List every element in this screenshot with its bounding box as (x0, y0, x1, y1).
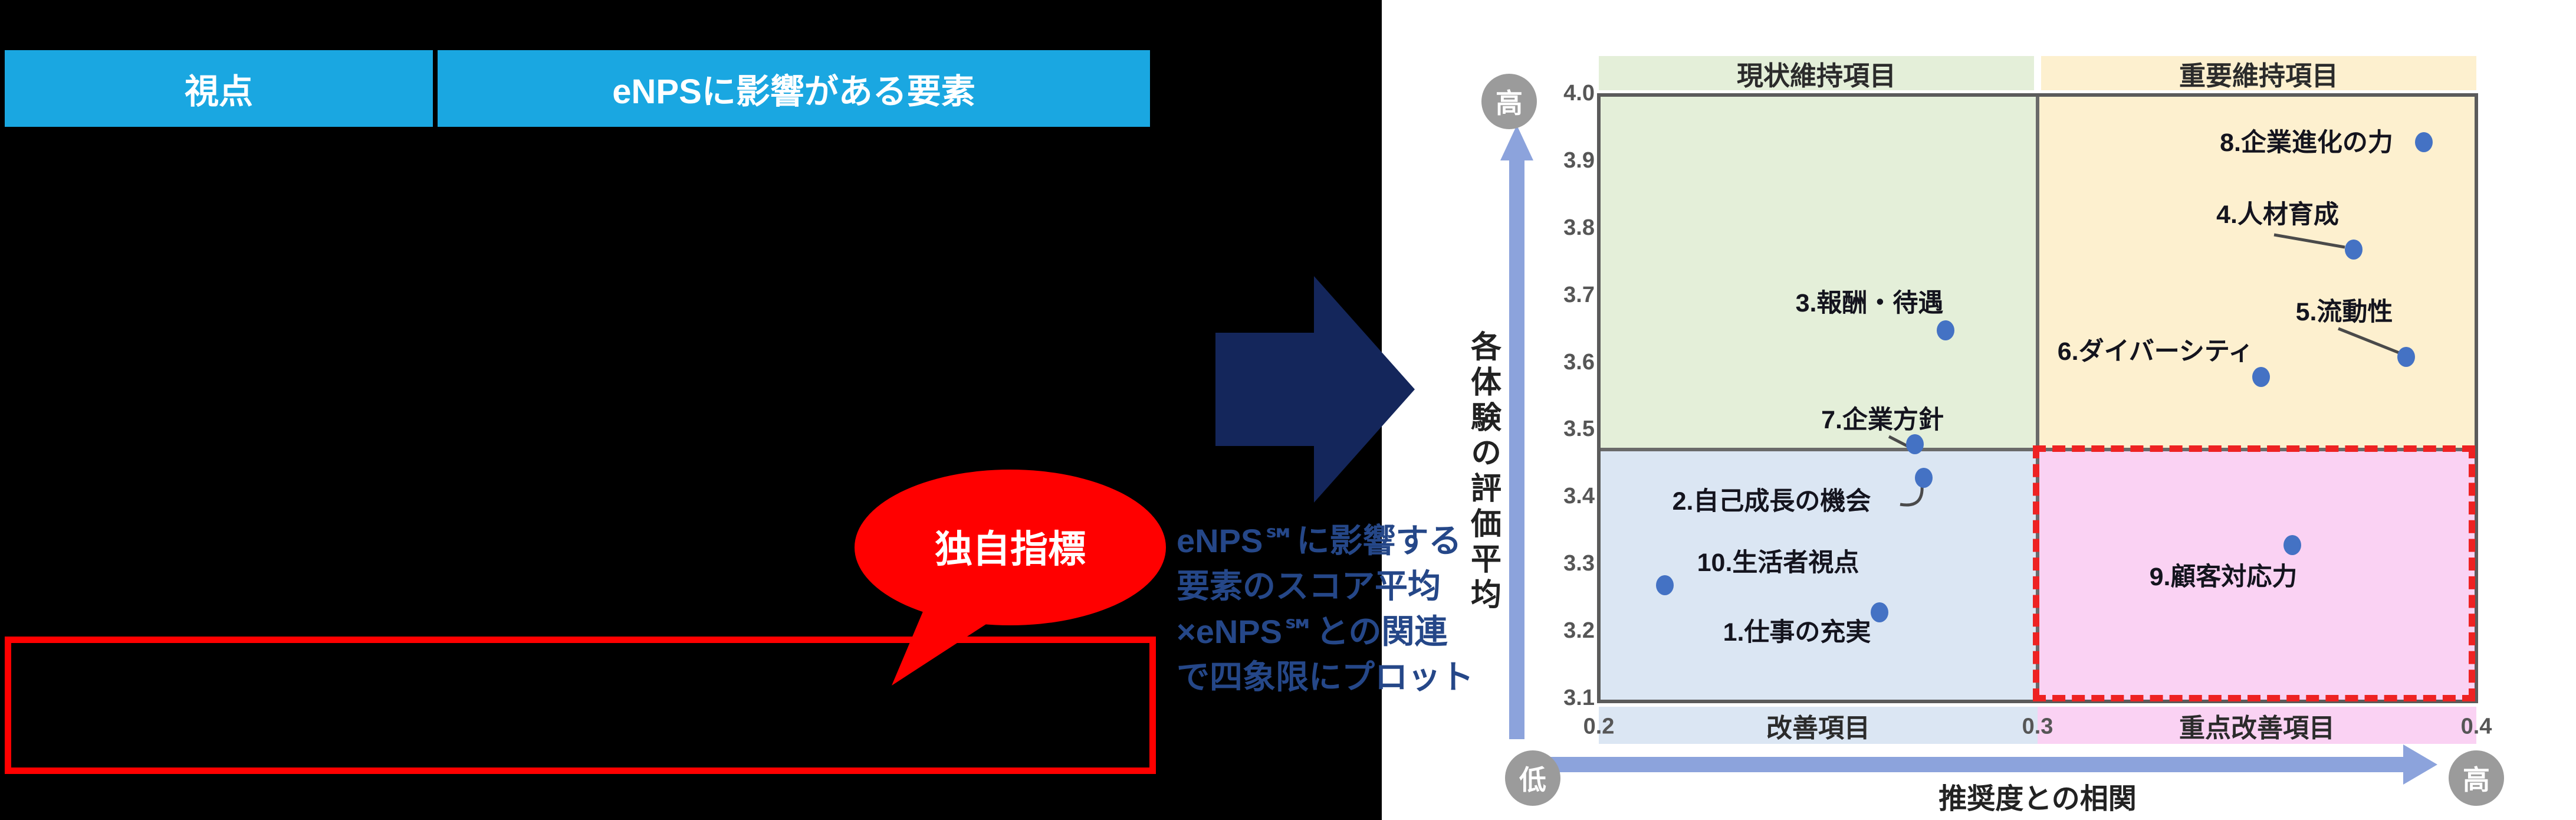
data-point-dot (1937, 320, 1954, 340)
highlight-outline-rectangle (5, 637, 1156, 774)
data-point-dot (2345, 240, 2363, 260)
data-point-label: 3.報酬・待遇 (1796, 283, 1944, 319)
data-point-label: 9.顧客対応力 (2150, 556, 2298, 593)
table-header-viewpoint-label: 視点 (185, 64, 253, 113)
data-point-dot (2415, 132, 2433, 152)
data-point-label: 8.企業進化の力 (2220, 122, 2393, 159)
y-axis-high-badge: 高 (1481, 74, 1537, 129)
x-axis-tick-label: 0.3 (2022, 714, 2053, 740)
annotation-text-block: eNPS℠に影響する要素のスコア平均×eNPS℠との関連で四象限にプロット (1177, 518, 1542, 700)
y-axis-tick-label: 3.7 (1500, 283, 1595, 308)
data-point-label: 1.仕事の充実 (1723, 612, 1871, 648)
quadrant-title-priority-improve: 重点改善項目 (2179, 707, 2335, 744)
quadrant-title-band-right: 重要維持項目 (2041, 56, 2476, 90)
x-axis-high-label: 高 (2463, 759, 2490, 798)
data-point-dot (1906, 434, 1924, 454)
y-axis-tick-label: 3.6 (1500, 350, 1595, 375)
slide-canvas: 視点 eNPSに影響がある要素 独自指標 eNPS℠に影響する要素のスコア平均×… (0, 0, 2576, 820)
annotation-line: ×eNPS℠との関連 (1177, 609, 1542, 654)
annotation-line: 要素のスコア平均 (1177, 563, 1542, 609)
data-point-label: 2.自己成長の機会 (1673, 481, 1871, 517)
y-axis-tick-label: 3.5 (1500, 416, 1595, 442)
x-axis-tick-label: 0.2 (1583, 714, 1615, 740)
quadrant-title-band-bottom-right: 重点改善項目 (2038, 707, 2476, 744)
quadrant-title-keep-current: 現状維持項目 (1737, 54, 1896, 93)
data-point-label: 5.流動性 (2296, 291, 2393, 328)
quadrant-title-band-left: 現状維持項目 (1599, 56, 2034, 90)
quadrant-title-band-bottom-left: 改善項目 (1599, 707, 2038, 744)
table-header-viewpoint: 視点 (5, 50, 433, 127)
data-point-label: 7.企業方針 (1821, 399, 1944, 436)
y-axis-high-label: 高 (1496, 82, 1523, 121)
data-point-dot (1871, 602, 1888, 622)
x-axis-arrow-head (2403, 744, 2437, 785)
data-point-dot (1915, 468, 1933, 488)
x-axis-tick-label: 0.4 (2461, 714, 2492, 740)
data-point-dot (2283, 535, 2301, 555)
data-point-label: 4.人材育成 (2216, 194, 2339, 231)
annotation-line: eNPS℠に影響する (1177, 518, 1542, 563)
y-axis-tick-label: 3.4 (1500, 484, 1595, 509)
table-header-enps-factors-label: eNPSに影響がある要素 (612, 64, 975, 113)
data-point-label: 6.ダイバーシティ (2058, 331, 2254, 368)
x-axis-title: 推奨度との相関 (1938, 775, 2137, 816)
table-header-enps-factors: eNPSに影響がある要素 (438, 50, 1150, 127)
quadrant-title-improve: 改善項目 (1766, 707, 1870, 744)
y-axis-tick-label: 3.9 (1500, 148, 1595, 173)
axis-low-badge: 低 (1505, 750, 1560, 806)
x-axis-arrow-shaft (1542, 757, 2404, 772)
data-point-dot (1656, 575, 1674, 595)
data-point-label: 10.生活者視点 (1697, 542, 1859, 579)
x-axis-high-badge: 高 (2449, 750, 2504, 806)
y-axis-tick-label: 3.8 (1500, 215, 1595, 241)
axis-low-label: 低 (1519, 759, 1546, 798)
callout-label: 独自指標 (935, 519, 1086, 573)
quadrant-title-important-keep: 重要維持項目 (2179, 54, 2338, 93)
data-point-dot (2397, 347, 2415, 367)
annotation-line: で四象限にプロット (1177, 654, 1542, 700)
